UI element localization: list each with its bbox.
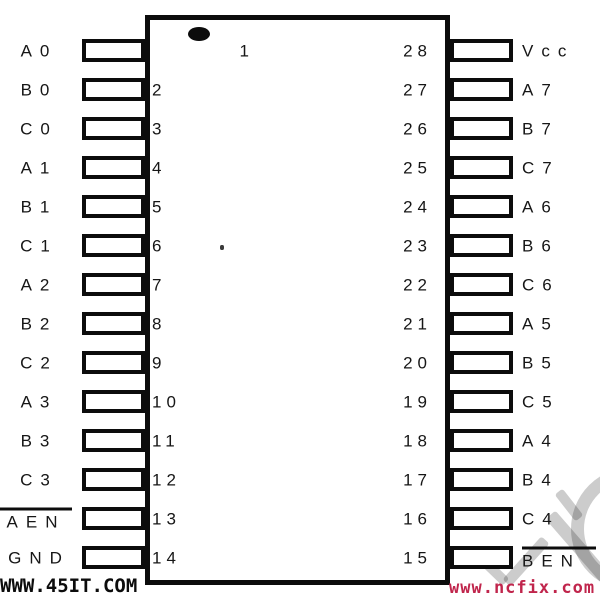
pin-number: 19 bbox=[330, 393, 432, 410]
pin-row: AEN 13 16 C4 bbox=[0, 507, 600, 530]
pin-number: 21 bbox=[330, 315, 432, 332]
pin-row: B3 11 18 A4 bbox=[0, 429, 600, 452]
pin-row: C0 3 26 B7 bbox=[0, 117, 600, 140]
pin-box bbox=[450, 117, 513, 140]
pin-label: C6 bbox=[522, 276, 560, 293]
pin-row: C2 9 20 B5 bbox=[0, 351, 600, 374]
pin-row: B2 8 21 A5 bbox=[0, 312, 600, 335]
pin-box bbox=[82, 39, 145, 62]
pin-label: C2 bbox=[0, 354, 78, 371]
pin-label: A5 bbox=[522, 315, 559, 332]
pin-label: C3 bbox=[0, 471, 78, 488]
pin-number: 2 bbox=[152, 81, 166, 98]
pin-label: A2 bbox=[0, 276, 78, 293]
pin-box bbox=[450, 429, 513, 452]
pin-number: 23 bbox=[330, 237, 432, 254]
pin-label: GND bbox=[0, 549, 78, 566]
pin-label: C5 bbox=[522, 393, 560, 410]
pin-label: B3 bbox=[0, 432, 78, 449]
pin-label: A7 bbox=[522, 81, 559, 98]
pin-label: B0 bbox=[0, 81, 78, 98]
pin-number: 17 bbox=[330, 471, 432, 488]
pin-number: 10 bbox=[152, 393, 181, 410]
watermark-ncfix-link[interactable]: www.ncfix.com bbox=[449, 578, 595, 598]
pin-box bbox=[450, 156, 513, 179]
pin-label: C1 bbox=[0, 237, 78, 254]
pin-label: B5 bbox=[522, 354, 559, 371]
pin-row: A3 10 19 C5 bbox=[0, 390, 600, 413]
pin-row: B0 2 27 A7 bbox=[0, 78, 600, 101]
pin-row: A0 1 28 Vcc bbox=[0, 39, 600, 62]
pin-label: C7 bbox=[522, 159, 560, 176]
pin-row: B1 5 24 A6 bbox=[0, 195, 600, 218]
pin-number: 13 bbox=[152, 510, 181, 527]
pin-box bbox=[82, 507, 145, 530]
pin-box bbox=[82, 351, 145, 374]
pin-number: 9 bbox=[152, 354, 166, 371]
pin-row: A2 7 22 C6 bbox=[0, 273, 600, 296]
pin-row: C3 12 17 B4 bbox=[0, 468, 600, 491]
pin-box bbox=[82, 312, 145, 335]
pin-box bbox=[82, 117, 145, 140]
pinout-diagram: A0 1 28 Vcc B0 2 27 A7 C0 3 26 B7 A1 4 bbox=[0, 0, 600, 599]
pin-label: A3 bbox=[0, 393, 78, 410]
pin-label: C4 bbox=[522, 510, 560, 527]
pin-box bbox=[82, 468, 145, 491]
pin-number: 18 bbox=[330, 432, 432, 449]
pin-number: 28 bbox=[330, 42, 432, 59]
pin-label: B6 bbox=[522, 237, 559, 254]
pin-number: 14 bbox=[152, 549, 181, 566]
pin-box bbox=[450, 507, 513, 530]
pin-label: C0 bbox=[0, 120, 78, 137]
pin-number: 1 bbox=[152, 42, 254, 59]
pin-label: Vcc bbox=[522, 42, 600, 59]
pin-box bbox=[82, 78, 145, 101]
pin-box bbox=[450, 273, 513, 296]
pin-box bbox=[450, 351, 513, 374]
pin-number: 3 bbox=[152, 120, 166, 137]
pin-box bbox=[450, 546, 513, 569]
pin-number: 15 bbox=[330, 549, 432, 566]
pin-label: A0 bbox=[0, 42, 78, 59]
pin-row: GND 14 15 BEN bbox=[0, 546, 600, 569]
pin-box bbox=[82, 195, 145, 218]
pin-box bbox=[450, 468, 513, 491]
pin-number: 6 bbox=[152, 237, 166, 254]
pin-number: 27 bbox=[330, 81, 432, 98]
pin-row: C1 6 23 B6 bbox=[0, 234, 600, 257]
pin-box bbox=[450, 39, 513, 62]
pin-number: 24 bbox=[330, 198, 432, 215]
pin-number: 16 bbox=[330, 510, 432, 527]
pin-number: 4 bbox=[152, 159, 166, 176]
pin-box bbox=[82, 390, 145, 413]
pin-number: 11 bbox=[152, 432, 180, 449]
pin-label: B1 bbox=[0, 198, 78, 215]
pin-label-aen: AEN bbox=[0, 507, 72, 530]
pin-number: 25 bbox=[330, 159, 432, 176]
pin-box bbox=[82, 546, 145, 569]
pin-rows: A0 1 28 Vcc B0 2 27 A7 C0 3 26 B7 A1 4 bbox=[0, 39, 600, 569]
pin-box bbox=[82, 273, 145, 296]
pin-box bbox=[450, 78, 513, 101]
pin-label: A6 bbox=[522, 198, 559, 215]
pin-number: 20 bbox=[330, 354, 432, 371]
pin-box bbox=[450, 312, 513, 335]
pin-number: 8 bbox=[152, 315, 166, 332]
pin-number: 12 bbox=[152, 471, 181, 488]
watermark-45it: WWW.45IT.COM bbox=[0, 575, 137, 597]
pin-label: A4 bbox=[522, 432, 559, 449]
pin-box bbox=[82, 156, 145, 179]
pin-row: A1 4 25 C7 bbox=[0, 156, 600, 179]
pin-label-ben: BEN bbox=[522, 546, 596, 569]
pin-number: 26 bbox=[330, 120, 432, 137]
pin-label: B2 bbox=[0, 315, 78, 332]
pin-box bbox=[450, 390, 513, 413]
pin-box bbox=[450, 195, 513, 218]
pin-label: A1 bbox=[0, 159, 78, 176]
pin-number: 7 bbox=[152, 276, 166, 293]
pin-label: B7 bbox=[522, 120, 559, 137]
pin-label: B4 bbox=[522, 471, 559, 488]
pin-box bbox=[82, 234, 145, 257]
pin-number: 22 bbox=[330, 276, 432, 293]
pin-box bbox=[450, 234, 513, 257]
pin-box bbox=[82, 429, 145, 452]
pin-number: 5 bbox=[152, 198, 166, 215]
